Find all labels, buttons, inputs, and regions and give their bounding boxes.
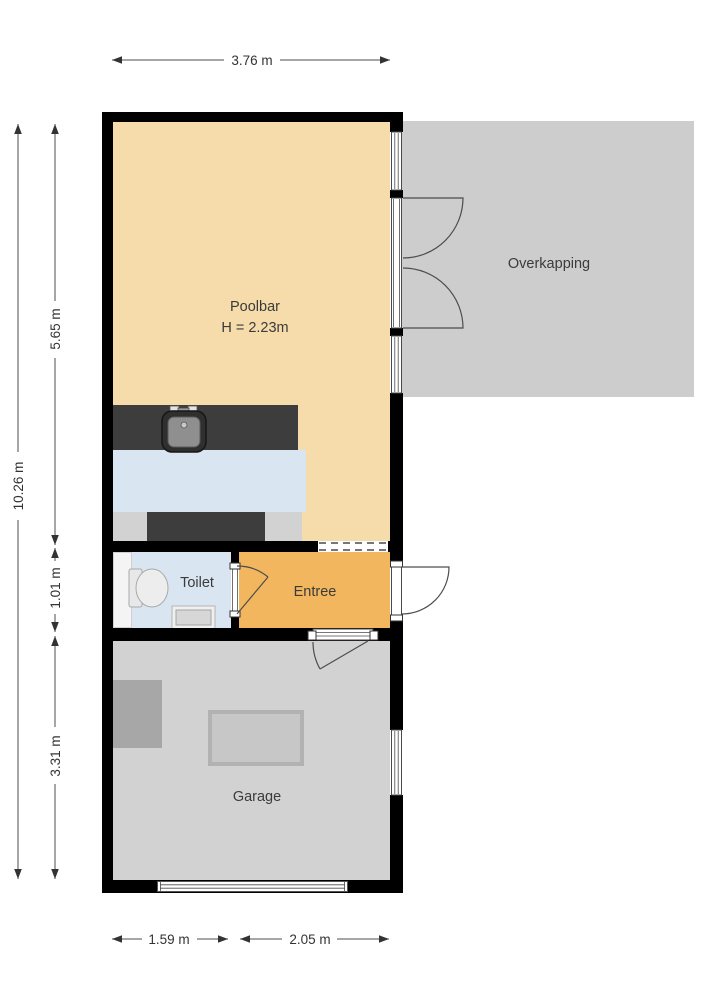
bar-area xyxy=(113,405,306,541)
bar-bench-left xyxy=(113,512,147,541)
wall-right-top-corner xyxy=(390,112,403,132)
overkapping-label: Overkapping xyxy=(508,256,590,272)
bar-sink xyxy=(162,406,206,452)
wall-right-bottom xyxy=(390,795,403,880)
wall-left xyxy=(102,112,113,893)
bar-floor xyxy=(113,450,306,512)
dim-bottom-right-width-label: 2.05 m xyxy=(289,932,330,947)
wall-right-sill-2 xyxy=(390,328,403,336)
entree-label: Entree xyxy=(294,584,337,600)
floor-plan: Overkapping xyxy=(0,0,707,1000)
poolbar-height-label: H = 2.23m xyxy=(221,320,288,336)
garage-table xyxy=(210,712,302,764)
wall-top xyxy=(102,112,403,122)
toilet-bowl xyxy=(136,569,168,607)
dim-toilet-height-label: 1.01 m xyxy=(48,567,63,608)
dim-poolbar-height-label: 5.65 m xyxy=(48,308,63,349)
garage-storage-box xyxy=(113,680,162,748)
dim-bottom-left-width-label: 1.59 m xyxy=(148,932,189,947)
toilet-sink xyxy=(172,606,215,629)
window-poolbar-upper xyxy=(392,132,402,190)
window-garage xyxy=(392,730,402,795)
window-poolbar-lower xyxy=(392,336,402,393)
opening-poolbar-entree xyxy=(318,541,388,552)
bar-front-counter xyxy=(147,512,265,541)
wall-right-mid xyxy=(390,393,403,561)
bar-bench-right xyxy=(265,512,302,541)
dim-total-height-label: 10.26 m xyxy=(11,462,26,511)
garage-label: Garage xyxy=(233,789,281,805)
garage-door xyxy=(158,882,348,892)
area-overkapping: Overkapping xyxy=(402,121,694,397)
toilet-label: Toilet xyxy=(180,575,214,591)
dim-garage-height-label: 3.31 m xyxy=(48,735,63,776)
dim-top-width-label: 3.76 m xyxy=(231,53,272,68)
poolbar-label: Poolbar xyxy=(230,299,280,315)
wall-right-sill-1 xyxy=(390,190,403,198)
